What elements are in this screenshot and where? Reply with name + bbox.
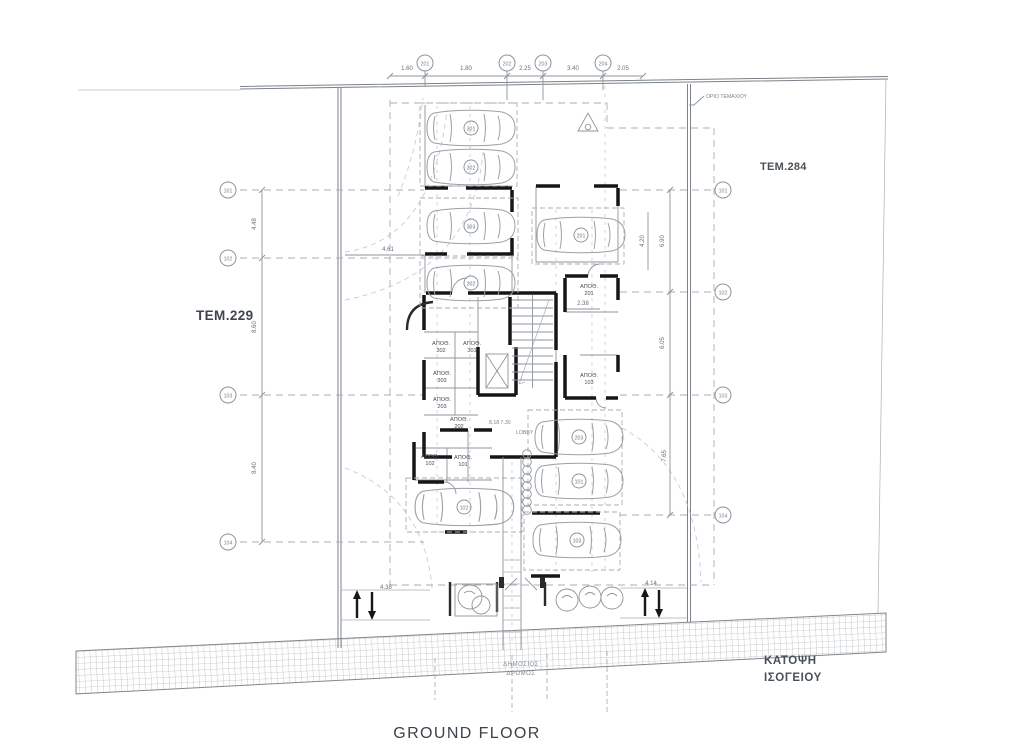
entrance-gate — [450, 577, 545, 616]
walkway-paving — [503, 560, 521, 632]
shrub-icon — [556, 589, 578, 611]
dim-left-3: 8.40 — [252, 462, 258, 474]
room-label: ΑΠΟΘ. — [580, 284, 598, 290]
dim-right-inner: 4.20 — [640, 235, 646, 247]
road-label-2: ΔΡΟΜΟΣ — [506, 671, 535, 677]
room-number: 102 — [425, 461, 434, 467]
entrance-walkway — [503, 450, 531, 650]
room-number: 203 — [437, 404, 446, 410]
room-number: 302 — [436, 348, 445, 354]
grid-bubble-label: 104 — [224, 541, 233, 547]
dim-top-5: 2.05 — [617, 66, 629, 72]
room-label: ΑΠΟΘ. — [433, 397, 451, 403]
spot-number: 102 — [460, 506, 469, 512]
plan-caption-line1: ΚΑΤΟΨΗ — [764, 655, 817, 667]
boundary-top — [240, 77, 888, 90]
elevator-x-icon — [486, 354, 508, 388]
triangle-symbol — [578, 113, 598, 131]
grid-bubble-label: 104 — [719, 514, 728, 520]
dimension-chain-left: 4.48 8.60 8.40 101 102 103 104 — [220, 182, 265, 550]
ramp-left — [341, 590, 430, 620]
stair-direction-arrow — [519, 300, 549, 384]
room-label: ΑΠΟΘ. — [580, 373, 598, 379]
ramp-right — [620, 588, 687, 618]
triangle-symbol-icon — [578, 113, 598, 131]
room-label: ΑΠΟΘ. — [421, 454, 439, 460]
gate-post — [499, 577, 504, 588]
room-label: ΑΠΟΘ. — [463, 341, 481, 347]
plot-label-left: ΤΕΜ.229 — [196, 308, 254, 323]
dim-right-1: 6.90 — [660, 235, 666, 247]
tree-icon — [472, 596, 490, 614]
lobby: 8.18 7.30 LOBBY — [489, 420, 534, 436]
room-label: ΑΠΟΘ. — [450, 417, 468, 423]
boundary-right-far — [878, 78, 886, 613]
grid-bubble-label: 102 — [719, 291, 728, 297]
dim-left-1: 4.48 — [252, 218, 258, 230]
room-label: ΑΠΟΘ. — [432, 341, 450, 347]
boundary-note-label: ΟΡΙΟ ΤΕΜΑΧΙΟΥ — [706, 94, 747, 100]
grid-bubble-label: 103 — [719, 394, 728, 400]
curved-wall — [407, 302, 433, 330]
room-number: 103 — [584, 380, 593, 386]
stair — [512, 295, 553, 388]
lobby-label: LOBBY — [516, 430, 534, 436]
grid-bubble-label: 101 — [719, 189, 728, 195]
spot-number: 303 — [467, 225, 476, 231]
boundary-note: ΟΡΙΟ ΤΕΜΑΧΙΟΥ — [689, 94, 747, 105]
spot-number: 203 — [575, 436, 584, 442]
road-label-1: ΔΗΜΟΣΙΟΣ — [503, 662, 539, 668]
spot-number: 202 — [467, 282, 476, 288]
parking-bays — [406, 103, 624, 570]
leader-line — [689, 96, 704, 105]
planter-tree — [455, 584, 497, 616]
dim-inner-storage: 2.38 — [577, 301, 589, 307]
spot-number: 201 — [577, 234, 586, 240]
room-number: 101 — [458, 462, 467, 468]
floor-plan-page: ΟΡΙΟ ΤΕΜΑΧΙΟΥ ΔΗΜΟΣΙΟΣ ΔΡΟΜΟΣ 1.60 1.80 … — [0, 0, 1024, 747]
dim-inner-upper: 4.61 — [382, 247, 394, 253]
room-number: 303 — [437, 378, 446, 384]
cars — [415, 110, 625, 558]
ground-floor-plan: ΟΡΙΟ ΤΕΜΑΧΙΟΥ ΔΗΜΟΣΙΟΣ ΔΡΟΜΟΣ 1.60 1.80 … — [0, 0, 1024, 747]
dim-top-3: 2.25 — [519, 66, 531, 72]
gate-post — [540, 577, 545, 588]
grid-bubble-label: 201 — [421, 62, 430, 68]
room-number: 301 — [467, 348, 476, 354]
dim-top-1: 1.60 — [401, 66, 413, 72]
shrubs — [556, 586, 623, 611]
dim-right-2: 6.05 — [660, 337, 666, 349]
tree-icon — [458, 585, 482, 609]
room-label: ΑΠΟΘ. — [454, 455, 472, 461]
room-number: 202 — [454, 424, 463, 430]
plan-caption-line2: ΙΣΟΓΕΙΟΥ — [764, 672, 822, 684]
dim-top-2: 1.80 — [460, 66, 472, 72]
boundary-left — [338, 88, 341, 648]
spot-number: 301 — [467, 127, 476, 133]
plot-label-right: ΤΕΜ.284 — [760, 161, 807, 173]
dimension-chain-top: 1.60 1.80 2.25 3.40 2.05 201 202 203 204 — [387, 55, 646, 79]
dim-ramp-right: 4.14 — [645, 581, 657, 587]
dim-right-3: 7.65 — [662, 450, 668, 462]
room-label: ΑΠΟΘ. — [433, 371, 451, 377]
boundary-wall-right — [688, 84, 691, 622]
dimension-chain-right: 6.90 6.05 7.65 4.20 101 102 103 104 — [640, 182, 731, 523]
column-row — [523, 450, 532, 515]
dim-top-4: 3.40 — [567, 66, 579, 72]
spot-number: 103 — [573, 539, 582, 545]
room-number: 201 — [584, 291, 593, 297]
lobby-levels: 8.18 7.30 — [489, 420, 511, 426]
drawing-title: GROUND FLOOR — [393, 725, 540, 742]
spot-number: 101 — [575, 480, 584, 486]
grid-bubble-label: 101 — [224, 189, 233, 195]
shrub-icon — [601, 587, 623, 609]
shrub-icon — [579, 586, 601, 608]
spot-number: 302 — [467, 166, 476, 172]
grid-bubble-label: 102 — [224, 257, 233, 263]
grid-bubble-label: 204 — [599, 62, 608, 68]
grid-bubble-label: 202 — [503, 62, 512, 68]
turning-arcs — [345, 98, 701, 588]
grid-bubble-label: 203 — [539, 62, 548, 68]
grid-bubble-label: 103 — [224, 394, 233, 400]
elevator — [486, 354, 508, 388]
